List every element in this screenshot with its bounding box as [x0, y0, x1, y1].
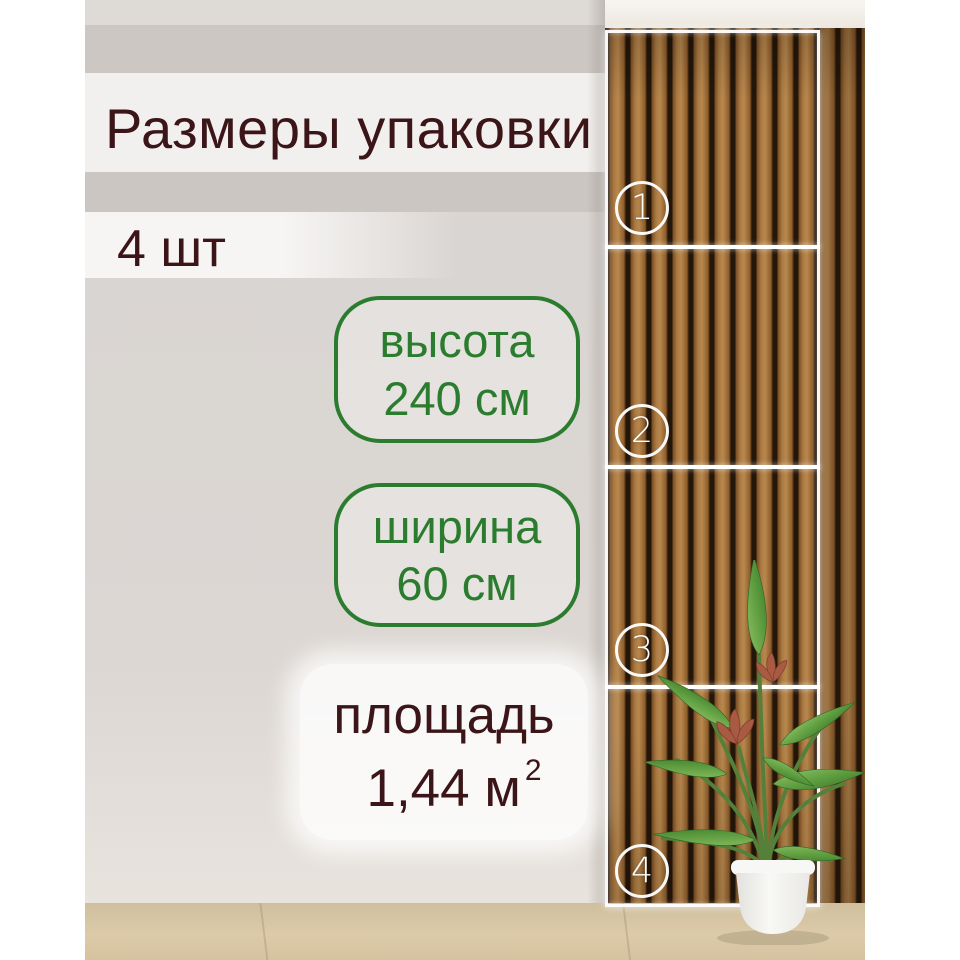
height-value: 240 см: [383, 370, 530, 427]
panel-section-divider: [605, 245, 820, 249]
wall-band-top: [85, 0, 605, 25]
panel-section-marker-1: 1: [615, 181, 669, 235]
width-label: ширина: [373, 498, 541, 555]
area-number: 1,44 м: [366, 759, 520, 818]
page-title: Размеры упаковки: [85, 96, 605, 161]
section-number: 1: [631, 188, 653, 228]
panel-section-marker-2: 2: [615, 404, 669, 458]
section-number: 2: [631, 411, 653, 451]
dimension-box-width: ширина 60 см: [334, 483, 580, 627]
plant-svg: [615, 560, 865, 945]
dimension-box-height: высота 240 см: [334, 296, 580, 443]
plant-illustration: [615, 560, 865, 945]
panel-section-divider: [605, 465, 820, 469]
quantity-label: 4 шт: [117, 219, 226, 279]
area-value: 1,44 м2: [366, 756, 541, 815]
area-superscript: 2: [525, 754, 542, 787]
wall-band-gray-mid: [85, 172, 605, 212]
product-infographic: 1 2 3 4: [0, 0, 960, 960]
width-value: 60 см: [396, 555, 517, 612]
plant-pot: [736, 873, 810, 934]
area-block: площадь 1,44 м2: [300, 664, 588, 840]
height-label: высота: [379, 312, 534, 369]
wall-band-gray-upper: [85, 25, 605, 73]
ceiling: [605, 0, 865, 28]
area-label: площадь: [333, 689, 554, 742]
